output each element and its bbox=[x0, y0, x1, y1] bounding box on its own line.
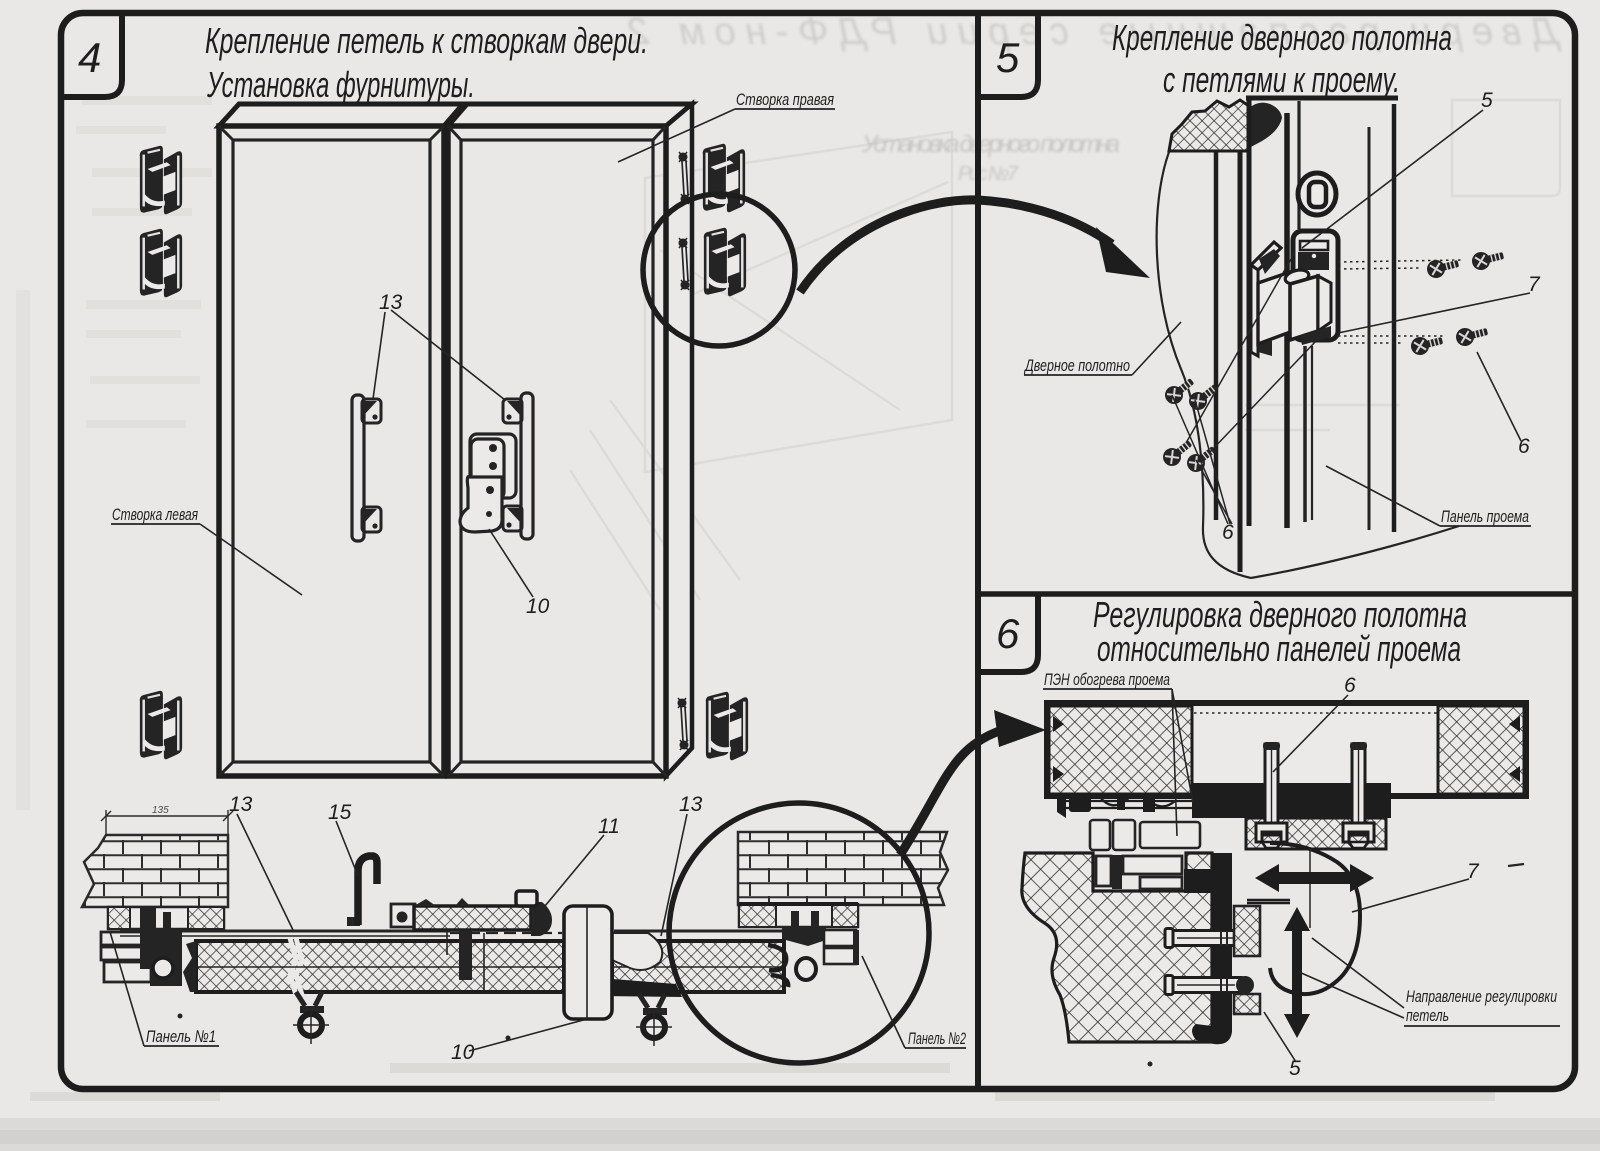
svg-text:6: 6 bbox=[996, 610, 1020, 657]
svg-text:5: 5 bbox=[996, 34, 1020, 81]
svg-text:15: 15 bbox=[328, 801, 352, 824]
svg-text:135: 135 bbox=[152, 805, 169, 816]
svg-text:Панель проема: Панель проема bbox=[1441, 507, 1529, 526]
svg-text:7: 7 bbox=[1528, 273, 1541, 296]
svg-text:Створка левая: Створка левая bbox=[112, 505, 198, 524]
svg-text:с петлями к проему.: с петлями к проему. bbox=[1163, 59, 1400, 100]
svg-text:Панель №2: Панель №2 bbox=[908, 1029, 966, 1048]
svg-text:6: 6 bbox=[1344, 674, 1356, 697]
svg-text:11: 11 bbox=[598, 815, 620, 838]
svg-text:Крепление дверного полотна: Крепление дверного полотна bbox=[1112, 17, 1452, 58]
svg-text:Направление регулировки: Направление регулировки bbox=[1406, 987, 1557, 1006]
svg-text:Установка фурнитуры.: Установка фурнитуры. bbox=[206, 64, 475, 105]
svg-text:Дверное полотно: Дверное полотно bbox=[1024, 356, 1130, 375]
svg-text:относительно панелей проема: относительно панелей проема bbox=[1097, 628, 1461, 669]
svg-text:петель: петель bbox=[1406, 1006, 1449, 1025]
svg-text:13: 13 bbox=[679, 793, 703, 816]
svg-text:Установка дверного полотна: Установка дверного полотна bbox=[861, 131, 1120, 158]
svg-text:Крепление петель к створкам дв: Крепление петель к створкам двери. bbox=[205, 20, 648, 61]
svg-text:Створка правая: Створка правая bbox=[736, 90, 834, 109]
svg-text:13: 13 bbox=[229, 793, 253, 816]
svg-text:10: 10 bbox=[526, 595, 550, 618]
svg-text:10: 10 bbox=[451, 1041, 475, 1064]
svg-text:5: 5 bbox=[1481, 89, 1493, 112]
svg-text:ПЭН обогрева проема: ПЭН обогрева проема bbox=[1044, 670, 1170, 689]
svg-text:6: 6 bbox=[1222, 521, 1234, 544]
svg-text:4: 4 bbox=[78, 34, 101, 81]
svg-text:Панель №1: Панель №1 bbox=[146, 1027, 216, 1046]
svg-text:Рис №7: Рис №7 bbox=[958, 163, 1019, 185]
